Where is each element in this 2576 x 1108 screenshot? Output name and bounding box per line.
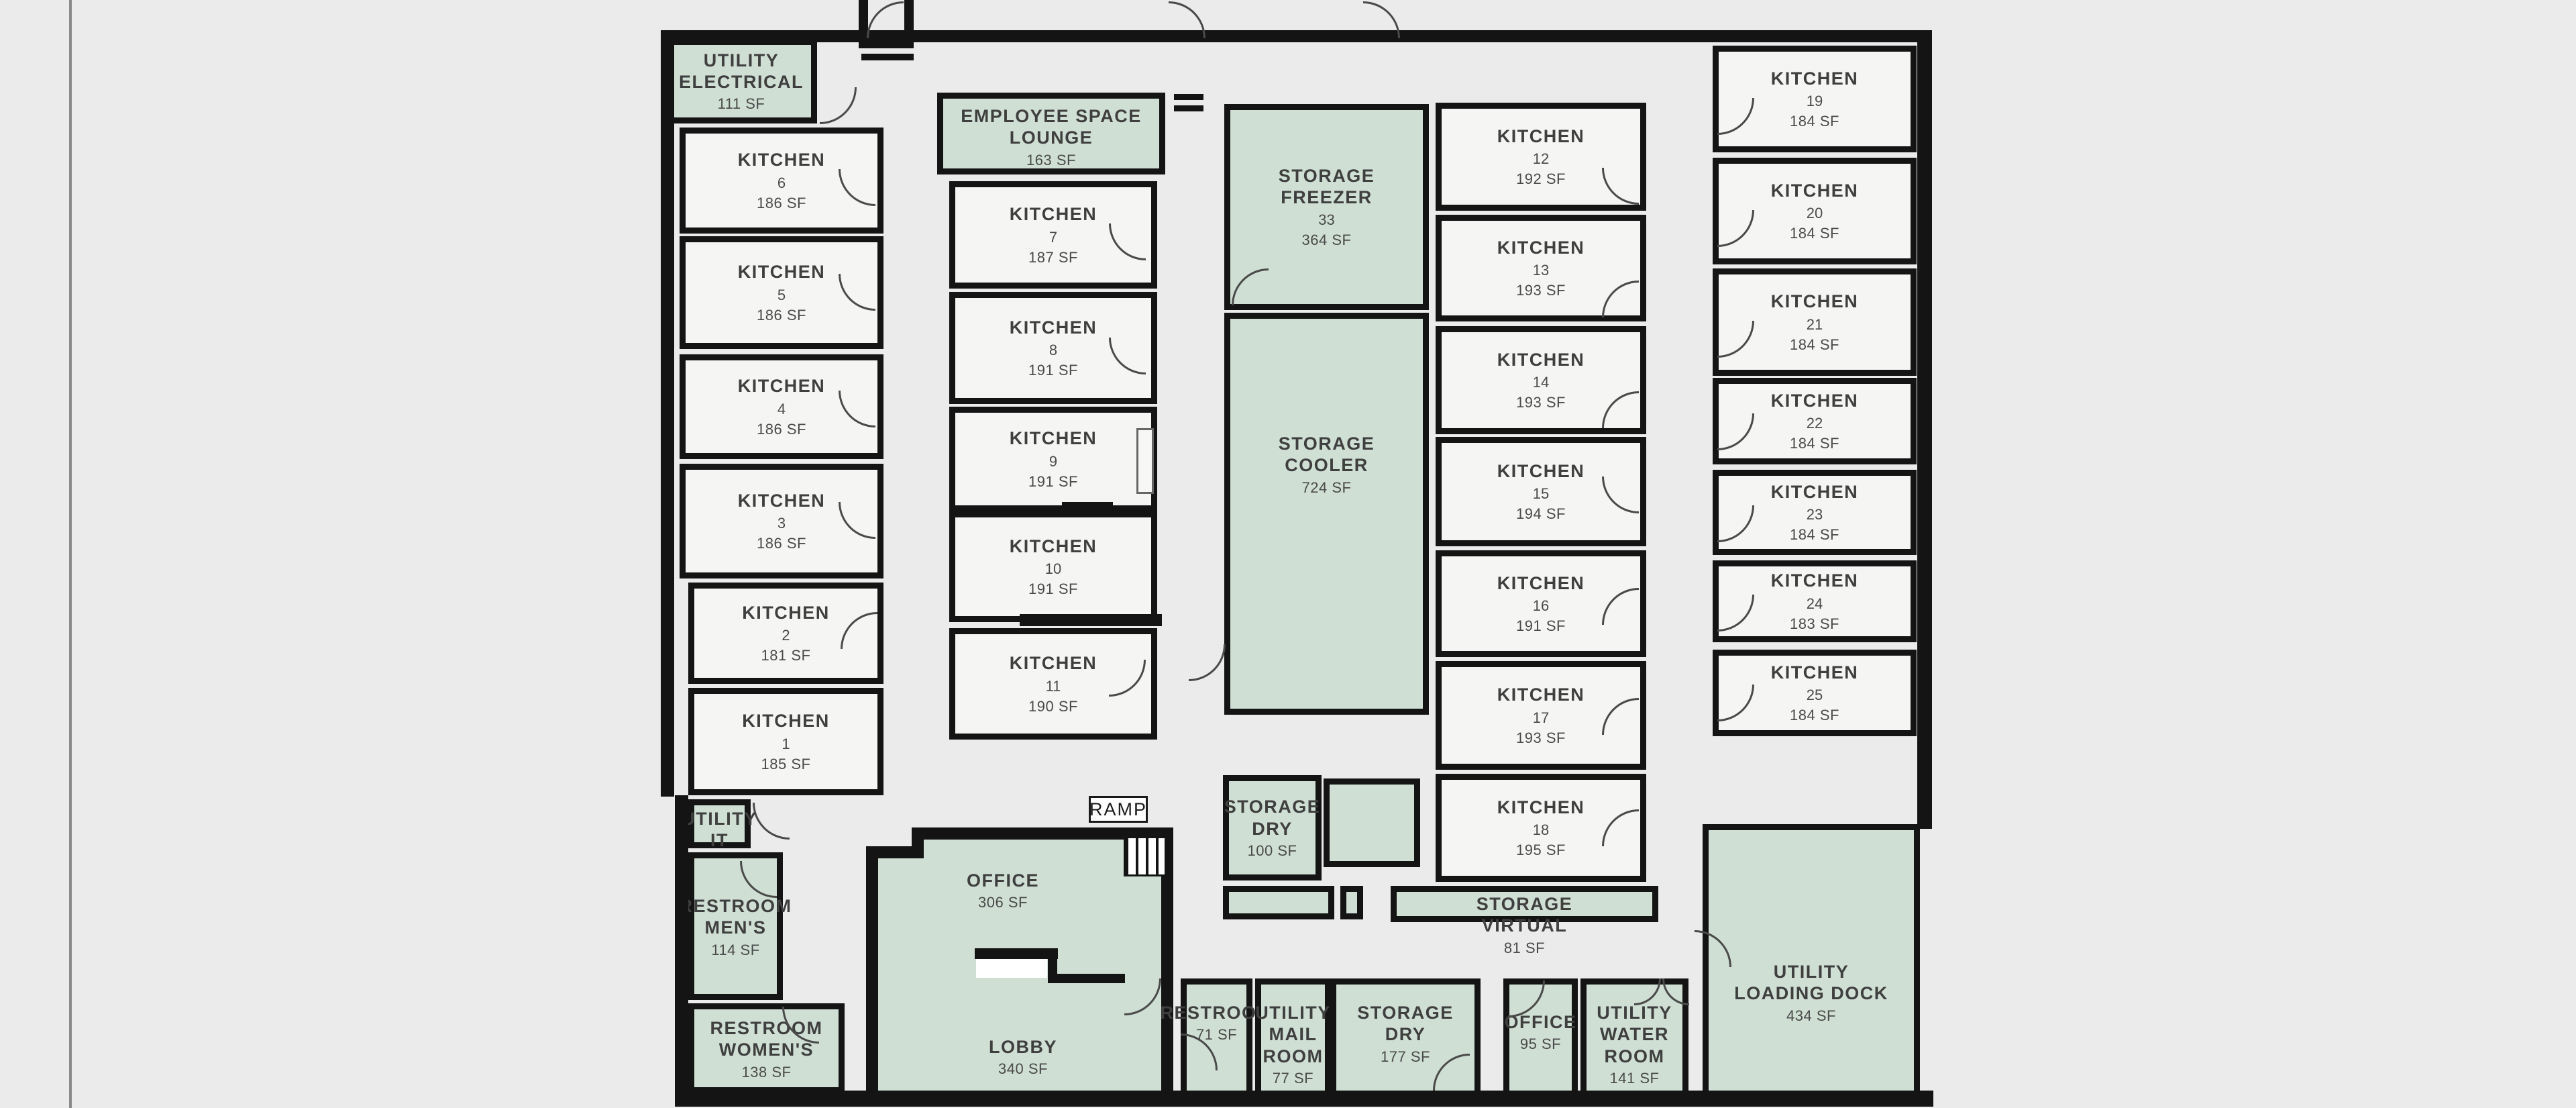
room-area: 193 SF <box>1516 394 1566 411</box>
room-number: 4 <box>777 401 786 418</box>
room-label: UTILITY LOADING DOCK <box>1734 961 1888 1005</box>
room-number: 5 <box>777 287 786 304</box>
ramp-label-text: RAMP <box>1089 799 1147 820</box>
door-arc <box>867 1 904 38</box>
room-label: KITCHEN <box>738 261 826 283</box>
room-number: 20 <box>1807 205 1823 222</box>
room-number: 1 <box>782 736 790 753</box>
room-utility-electrical: UTILITY ELECTRICAL111 SF <box>665 39 817 123</box>
room-employee-space-lounge: EMPLOYEE SPACE LOUNGE163 SF <box>937 93 1165 174</box>
room-area: 364 SF <box>1302 232 1352 249</box>
room-label: KITCHEN <box>1497 237 1585 258</box>
room-number: 10 <box>1045 560 1061 578</box>
room-number: 22 <box>1807 415 1823 432</box>
room-storage-cooler: STORAGE COOLER724 SF <box>1224 313 1429 715</box>
room-number: 2 <box>782 627 790 644</box>
room-label: KITCHEN <box>738 490 826 511</box>
wall-segment <box>661 30 1932 42</box>
room-label: KITCHEN <box>1771 390 1859 411</box>
room-storage-room-small <box>1324 778 1420 867</box>
room-label: KITCHEN <box>1771 570 1859 591</box>
room-area: 193 SF <box>1516 282 1566 299</box>
wall-segment <box>1062 502 1113 514</box>
room-number: 11 <box>1046 678 1061 695</box>
room-area: 192 SF <box>1516 170 1566 188</box>
room-area: 185 SF <box>761 756 811 773</box>
room-area: 340 SF <box>998 1060 1048 1078</box>
room-label: UTILITY ELECTRICAL <box>679 50 804 93</box>
room-label: RESTROOM MEN'S <box>680 895 792 939</box>
room-number: 21 <box>1807 316 1823 334</box>
room-number: 19 <box>1807 93 1823 110</box>
door-arc <box>1363 1 1400 38</box>
room-number: 25 <box>1807 687 1823 704</box>
room-area: 193 SF <box>1516 729 1566 747</box>
room-number: 6 <box>777 174 786 192</box>
room-office-306: OFFICE306 SF <box>926 854 1080 927</box>
room-area: 306 SF <box>978 894 1028 911</box>
room-area: 186 SF <box>757 195 806 212</box>
floor-plan-canvas: UTILITY ELECTRICAL111 SFKITCHEN6186 SFKI… <box>0 0 2576 1108</box>
room-label: LOBBY <box>989 1036 1057 1058</box>
room-area: 114 SF <box>711 942 759 959</box>
sliding-door <box>1136 428 1154 494</box>
room-label: UTILITY MAIL ROOM <box>1255 1002 1331 1067</box>
room-label: KITCHEN <box>1010 652 1097 674</box>
room-utility-loading-dock: UTILITY LOADING DOCK434 SF <box>1703 824 1920 1102</box>
room-kitchen-9: KITCHEN9191 SF <box>949 407 1157 511</box>
room-label: KITCHEN <box>742 602 830 623</box>
door-arc <box>820 87 857 124</box>
ramp-stairs <box>1124 836 1167 876</box>
room-label: KITCHEN <box>1010 536 1097 557</box>
room-number: 17 <box>1533 709 1549 727</box>
wall-segment <box>1174 105 1203 111</box>
door-arc <box>1169 1 1205 38</box>
room-area: 184 SF <box>1790 113 1839 130</box>
room-number: 33 <box>1318 211 1334 229</box>
room-label: KITCHEN <box>1771 662 1859 683</box>
room-label: KITCHEN <box>1010 203 1097 225</box>
room-label: KITCHEN <box>1497 460 1585 482</box>
room-label: KITCHEN <box>738 149 826 170</box>
room-area: 141 SF <box>1610 1070 1660 1087</box>
room-area: 191 SF <box>1516 617 1566 635</box>
room-number: 7 <box>1049 229 1057 246</box>
room-area: 177 SF <box>1381 1048 1430 1066</box>
room-label: KITCHEN <box>1771 291 1859 312</box>
room-area: 434 SF <box>1786 1007 1836 1025</box>
room-kitchen-1: KITCHEN1185 SF <box>688 688 883 795</box>
room-area: 191 SF <box>1028 362 1078 379</box>
room-number: 16 <box>1533 597 1549 615</box>
wall-segment <box>1917 30 1932 829</box>
room-label: STORAGE FREEZER <box>1279 165 1375 209</box>
door-arc <box>1189 644 1226 681</box>
room-label: KITCHEN <box>1771 68 1859 89</box>
room-label: KITCHEN <box>1497 125 1585 147</box>
wall-segment <box>661 30 674 797</box>
room-label: OFFICE <box>967 870 1039 891</box>
room-number: 15 <box>1533 485 1549 503</box>
room-label: KITCHEN <box>742 710 830 732</box>
room-area: 184 SF <box>1790 435 1839 452</box>
room-area: 184 SF <box>1790 225 1839 242</box>
room-label: KITCHEN <box>1497 349 1585 370</box>
room-kitchen-10: KITCHEN10191 SF <box>949 511 1157 622</box>
room-label: UTILITY WATER ROOM <box>1587 1002 1682 1067</box>
room-number: 3 <box>777 515 786 532</box>
room-label: EMPLOYEE SPACE LOUNGE <box>961 105 1142 149</box>
room-area: 95 SF <box>1520 1036 1561 1053</box>
room-area: 184 SF <box>1790 707 1839 724</box>
room-area: 184 SF <box>1790 526 1839 544</box>
room-area: 186 SF <box>757 421 806 438</box>
room-storage-virtual-strip-a <box>1223 886 1334 919</box>
room-area: 100 SF <box>1248 842 1297 860</box>
room-area: 183 SF <box>1790 615 1839 633</box>
room-area: 181 SF <box>761 647 811 664</box>
wall-segment <box>975 948 1058 959</box>
room-storage-virtual: STORAGE VIRTUAL81 SF <box>1391 886 1658 922</box>
door-arc <box>753 803 790 840</box>
wall-segment <box>1048 974 1125 983</box>
room-label: KITCHEN <box>1771 481 1859 503</box>
room-number: 9 <box>1049 453 1057 470</box>
room-label: STORAGE DRY <box>1357 1002 1454 1046</box>
room-area: 186 SF <box>757 307 806 324</box>
room-number: 8 <box>1049 342 1057 359</box>
room-area: 77 SF <box>1273 1070 1313 1087</box>
room-label: KITCHEN <box>1010 317 1097 338</box>
room-storage-virtual-strip-b <box>1340 886 1363 919</box>
room-number: 13 <box>1533 262 1549 279</box>
room-number: 12 <box>1533 150 1549 168</box>
room-area: 186 SF <box>757 535 806 552</box>
wall-segment <box>675 795 688 1092</box>
room-utility-it: UTILITY IT24 SF <box>688 799 751 848</box>
room-label: KITCHEN <box>738 375 826 397</box>
room-number: 18 <box>1533 821 1549 839</box>
wall-segment <box>675 1091 1933 1107</box>
room-area: 191 SF <box>1028 473 1078 491</box>
room-lobby: LOBBY340 SF <box>946 1017 1100 1097</box>
room-area: 724 SF <box>1302 479 1352 497</box>
room-label: KITCHEN <box>1771 180 1859 201</box>
room-restroom-womens: RESTROOM WOMEN'S138 SF <box>688 1003 845 1093</box>
page-divider-line <box>69 0 72 1108</box>
room-area: 194 SF <box>1516 505 1566 523</box>
room-number: 24 <box>1807 595 1823 613</box>
room-area: 191 SF <box>1028 581 1078 598</box>
room-label: KITCHEN <box>1497 572 1585 594</box>
room-number: 23 <box>1807 506 1823 523</box>
room-label: STORAGE DRY <box>1224 796 1321 840</box>
room-area: 163 SF <box>1026 152 1076 169</box>
room-area: 195 SF <box>1516 842 1566 859</box>
room-storage-dry-100: STORAGE DRY100 SF <box>1223 775 1322 880</box>
room-area: 184 SF <box>1790 336 1839 354</box>
room-area: 138 SF <box>742 1064 792 1081</box>
room-label: KITCHEN <box>1497 684 1585 705</box>
wall-segment <box>861 42 914 48</box>
room-label: UTILITY IT <box>682 808 757 852</box>
wall-segment <box>1020 614 1162 626</box>
room-number: 14 <box>1533 374 1549 391</box>
room-area: 187 SF <box>1028 249 1078 266</box>
room-area: 81 SF <box>1504 940 1545 957</box>
ramp-label: RAMP <box>1089 796 1148 823</box>
room-label: KITCHEN <box>1497 797 1585 818</box>
room-label: KITCHEN <box>1010 427 1097 449</box>
room-area: 111 SF <box>718 95 765 113</box>
reception-desk-slot <box>976 959 1047 978</box>
wall-segment <box>861 54 914 60</box>
room-area: 190 SF <box>1028 698 1078 715</box>
wall-segment <box>1174 94 1203 100</box>
room-label: STORAGE COOLER <box>1279 433 1375 476</box>
room-label: STORAGE VIRTUAL <box>1477 893 1573 937</box>
room-utility-mail-room: UTILITY MAIL ROOM77 SF <box>1255 978 1331 1102</box>
